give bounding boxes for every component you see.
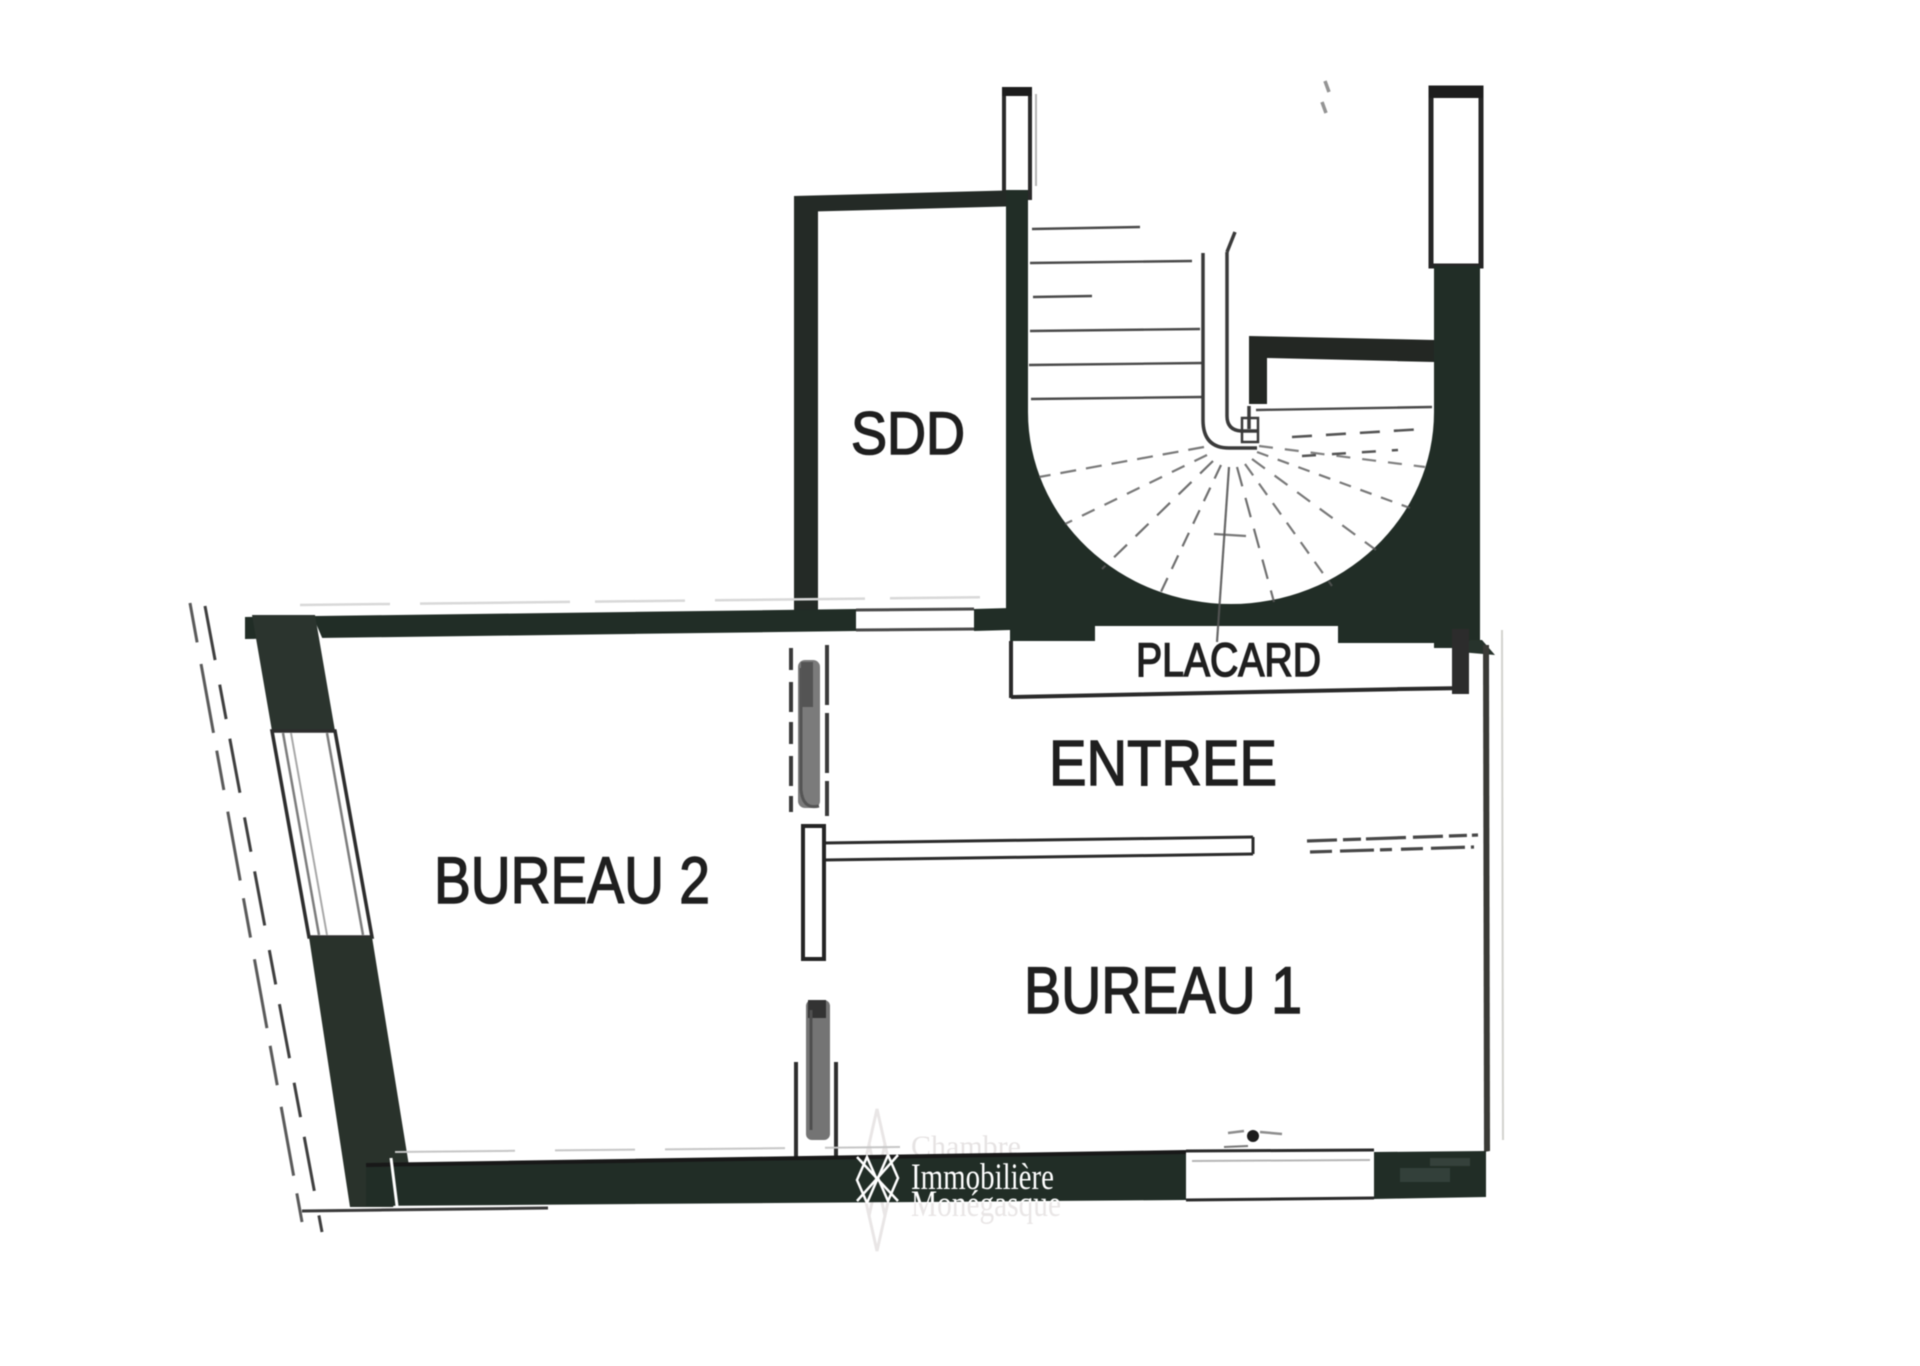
svg-text:BUREAU 1: BUREAU 1 bbox=[1024, 953, 1302, 1027]
svg-text:BUREAU 2: BUREAU 2 bbox=[434, 843, 710, 917]
svg-text:PLACARD: PLACARD bbox=[1136, 633, 1321, 686]
svg-text:ENTREE: ENTREE bbox=[1049, 727, 1277, 799]
svg-text:SDD: SDD bbox=[851, 400, 965, 467]
